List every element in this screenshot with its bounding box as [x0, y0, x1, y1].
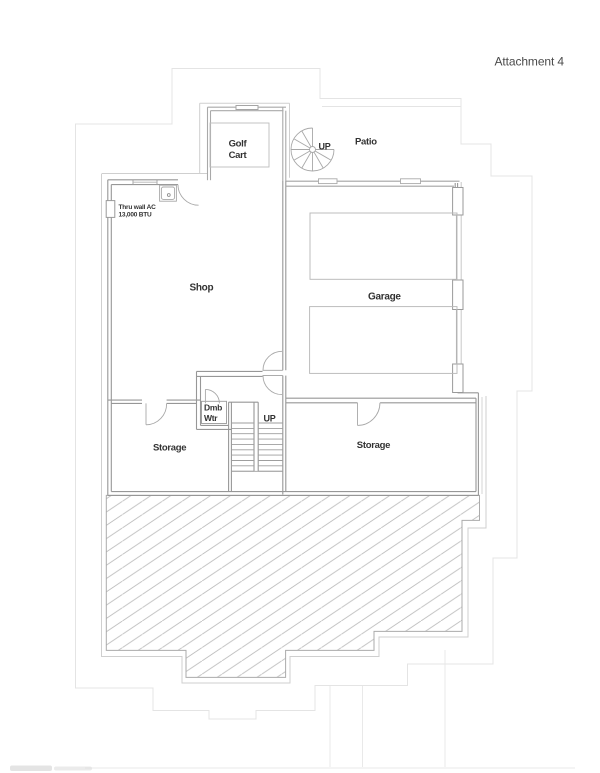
svg-text:UP: UP	[319, 141, 331, 151]
svg-text:Patio: Patio	[355, 137, 377, 148]
svg-text:Thru wall AC: Thru wall AC	[119, 204, 157, 211]
svg-text:Attachment 4: Attachment 4	[495, 55, 565, 69]
svg-text:Cart: Cart	[229, 150, 248, 161]
svg-text:13,000 BTU: 13,000 BTU	[119, 211, 153, 218]
svg-text:UP: UP	[264, 414, 276, 424]
svg-text:Storage: Storage	[357, 440, 390, 451]
svg-text:Dmb: Dmb	[204, 403, 222, 413]
svg-text:Storage: Storage	[153, 443, 186, 454]
svg-text:Garage: Garage	[368, 292, 401, 303]
svg-text:Wtr: Wtr	[204, 413, 218, 423]
svg-text:Shop: Shop	[190, 283, 214, 294]
svg-text:Golf: Golf	[229, 139, 248, 150]
